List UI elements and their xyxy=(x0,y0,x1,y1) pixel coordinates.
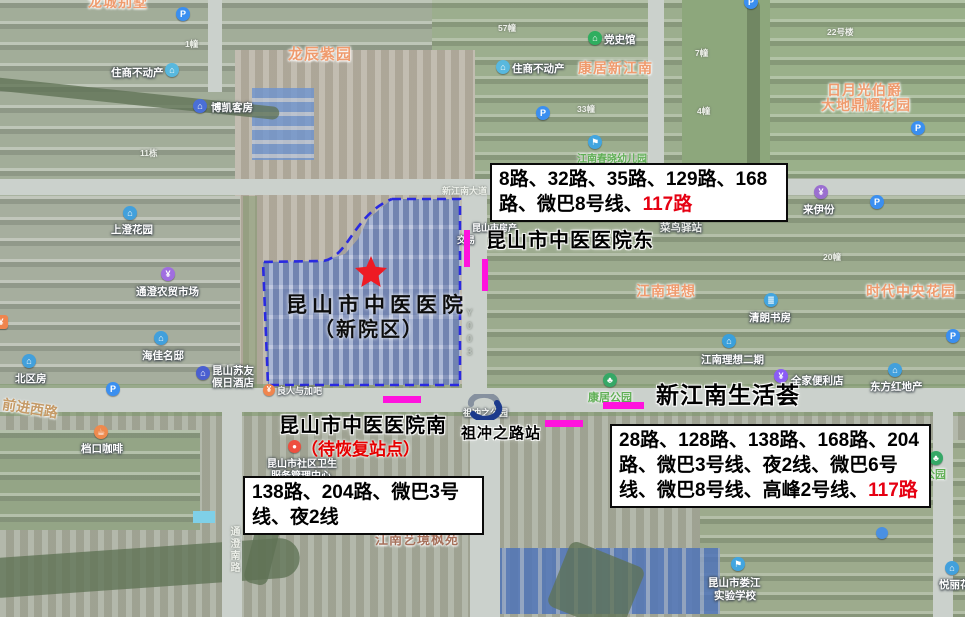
kindergarten-icon: ⚑ xyxy=(588,135,602,149)
bus-stop-highlight-east-2 xyxy=(482,259,488,291)
routes-east-black: 8路、32路、35路、129路、168路、微巴8号线、 xyxy=(499,169,767,215)
area-label-longchen: 龙辰紫园 xyxy=(288,43,352,64)
poi-label-tongcheng-market: 通澄农贸市场 xyxy=(136,284,199,299)
parking-icon: P xyxy=(870,195,884,209)
landmark-icon: ⌂ xyxy=(945,561,959,575)
building-number: 20幢 xyxy=(823,251,841,263)
hospital-name-line2: （新院区） xyxy=(314,313,424,342)
building-number: 4幢 xyxy=(697,105,710,117)
parking-icon: P xyxy=(106,382,120,396)
poi-label-louxiao-2: 实验学校 xyxy=(714,588,756,603)
poi-label-zhushang-2: 住商不动产 xyxy=(512,61,565,76)
realty-icon: ⌂ xyxy=(165,63,179,77)
routes-callout-shenghuo: 28路、128路、138路、168路、204路、微巴3号线、夜2线、微巴6号线、… xyxy=(610,424,931,508)
building-number: 1幢 xyxy=(185,38,198,50)
poi-label-haijia: 海佳名邸 xyxy=(142,348,184,363)
school-icon: ⚑ xyxy=(731,557,745,571)
poi-label-yueli-cut: 悦丽花园 xyxy=(939,577,965,592)
station-park-label: 祖冲之公园 xyxy=(463,406,508,419)
area-label-cut-top: 龙城别墅 xyxy=(88,0,148,12)
pool xyxy=(193,511,215,523)
road-vertical-north xyxy=(648,0,664,180)
routes-callout-south: 138路、204路、微巴3号线、夜2线 xyxy=(243,476,484,535)
bus-stop-highlight-east-1 xyxy=(464,230,470,267)
memorial-icon: ⌂ xyxy=(588,31,602,45)
park-icon: ♣ xyxy=(929,451,943,465)
poi-label-zhushang-1: 住商不动产 xyxy=(111,65,164,80)
market-icon: ¥ xyxy=(161,267,175,281)
hotel-icon: ⌂ xyxy=(193,99,207,113)
stop-title-south: 昆山市中医医院南 xyxy=(279,409,447,438)
road-tongcheng xyxy=(222,412,242,617)
area-label-shidai: 时代中央花园 xyxy=(866,281,956,301)
coffee-icon: ☕ xyxy=(94,425,108,439)
bus-stop-highlight-south xyxy=(383,396,421,403)
satellite-map: 昆山市中医医院 （新院区） 祖冲之公园 祖冲之路站 昆山市中医医院东 昆山市中医… xyxy=(0,0,965,617)
poi-label-lixiang-erqi: 江南理想二期 xyxy=(701,352,764,367)
building-number: 33幢 xyxy=(577,103,595,115)
realty-icon: ⌂ xyxy=(22,354,36,368)
parking-icon: P xyxy=(911,121,925,135)
poi-label-shangcheng: 上澄花园 xyxy=(111,222,153,237)
area-label-jiangnan-lixiang: 江南理想 xyxy=(636,281,696,301)
bus-stop-highlight-shenghuo xyxy=(603,402,644,409)
routes-south-black: 138路、204路、微巴3号线、夜2线 xyxy=(252,482,459,528)
suspended-stop-marker-icon: ● xyxy=(288,440,301,453)
tree-strip-west-of-hospital xyxy=(243,196,257,388)
blue-roofs-north xyxy=(252,88,314,160)
poi-label-dangshiguan: 党史馆 xyxy=(604,32,636,47)
realty-icon: ⌂ xyxy=(496,60,510,74)
garden-icon: ⌂ xyxy=(123,206,137,220)
parking-icon: P xyxy=(176,7,190,21)
realty-icon: ⌂ xyxy=(888,363,902,377)
routes-callout-east: 8路、32路、35路、129路、168路、微巴8号线、117路 xyxy=(490,163,788,222)
poi-marker-cut-left-icon: ¥ xyxy=(0,315,8,329)
poi-label-dongfanghong: 东方红地产 xyxy=(870,379,923,394)
building-number: 11栋 xyxy=(140,147,158,159)
routes-shenghuo-red: 117路 xyxy=(868,480,918,501)
road-label-xinjiangnan-dadao: 新江南大道 xyxy=(442,184,487,197)
area-label-kangju-xinjiangnan: 康居新江南 xyxy=(578,58,653,78)
hotel-icon: ⌂ xyxy=(196,366,210,380)
road-vertical-nw xyxy=(208,0,222,92)
canal-east xyxy=(747,0,760,180)
parking-icon: P xyxy=(946,329,960,343)
stop-status-suspended: （待恢复站点） xyxy=(301,435,420,460)
poi-label-qinglang: 清朗书房 xyxy=(749,310,791,325)
building-number: 7幢 xyxy=(695,47,708,59)
poi-label-dangkou: 档口咖啡 xyxy=(81,441,123,456)
snack-shop-icon: ¥ xyxy=(814,185,828,199)
poi-label-lurenjia: 良人与加吧 xyxy=(277,384,322,397)
landmark-icon: ⌂ xyxy=(154,331,168,345)
metro-station-name: 祖冲之路站 xyxy=(461,422,541,443)
building-number: 57幢 xyxy=(498,22,516,34)
map-dot-icon xyxy=(876,527,888,539)
poi-label-beiqufang: 北区房 xyxy=(15,371,47,386)
poi-label-cainiao: 菜鸟驿站 xyxy=(660,220,702,235)
food-icon: ¥ xyxy=(263,384,275,396)
area-label-riyueguang-2: 大地鼎耀花园 xyxy=(821,95,911,115)
poi-label-bokai: 博凯客房 xyxy=(211,100,253,115)
stop-title-east: 昆山市中医医院东 xyxy=(486,224,654,253)
building-number: 22号楼 xyxy=(827,26,853,38)
stop-title-shenghuo: 新江南生活荟 xyxy=(656,376,800,410)
poi-label-suyou-2: 假日酒店 xyxy=(212,375,254,390)
landmark-icon: ⌂ xyxy=(722,334,736,348)
parking-icon: P xyxy=(536,106,550,120)
book-store-icon: ≣ xyxy=(764,293,778,307)
road-label-tongcheng-nanlu: 通澄南路 xyxy=(226,526,241,574)
routes-east-red: 117路 xyxy=(643,194,693,215)
park-icon: ♣ xyxy=(603,373,617,387)
bus-stop-highlight-station xyxy=(545,420,583,427)
poi-label-laiyifen: 来伊份 xyxy=(803,202,835,217)
